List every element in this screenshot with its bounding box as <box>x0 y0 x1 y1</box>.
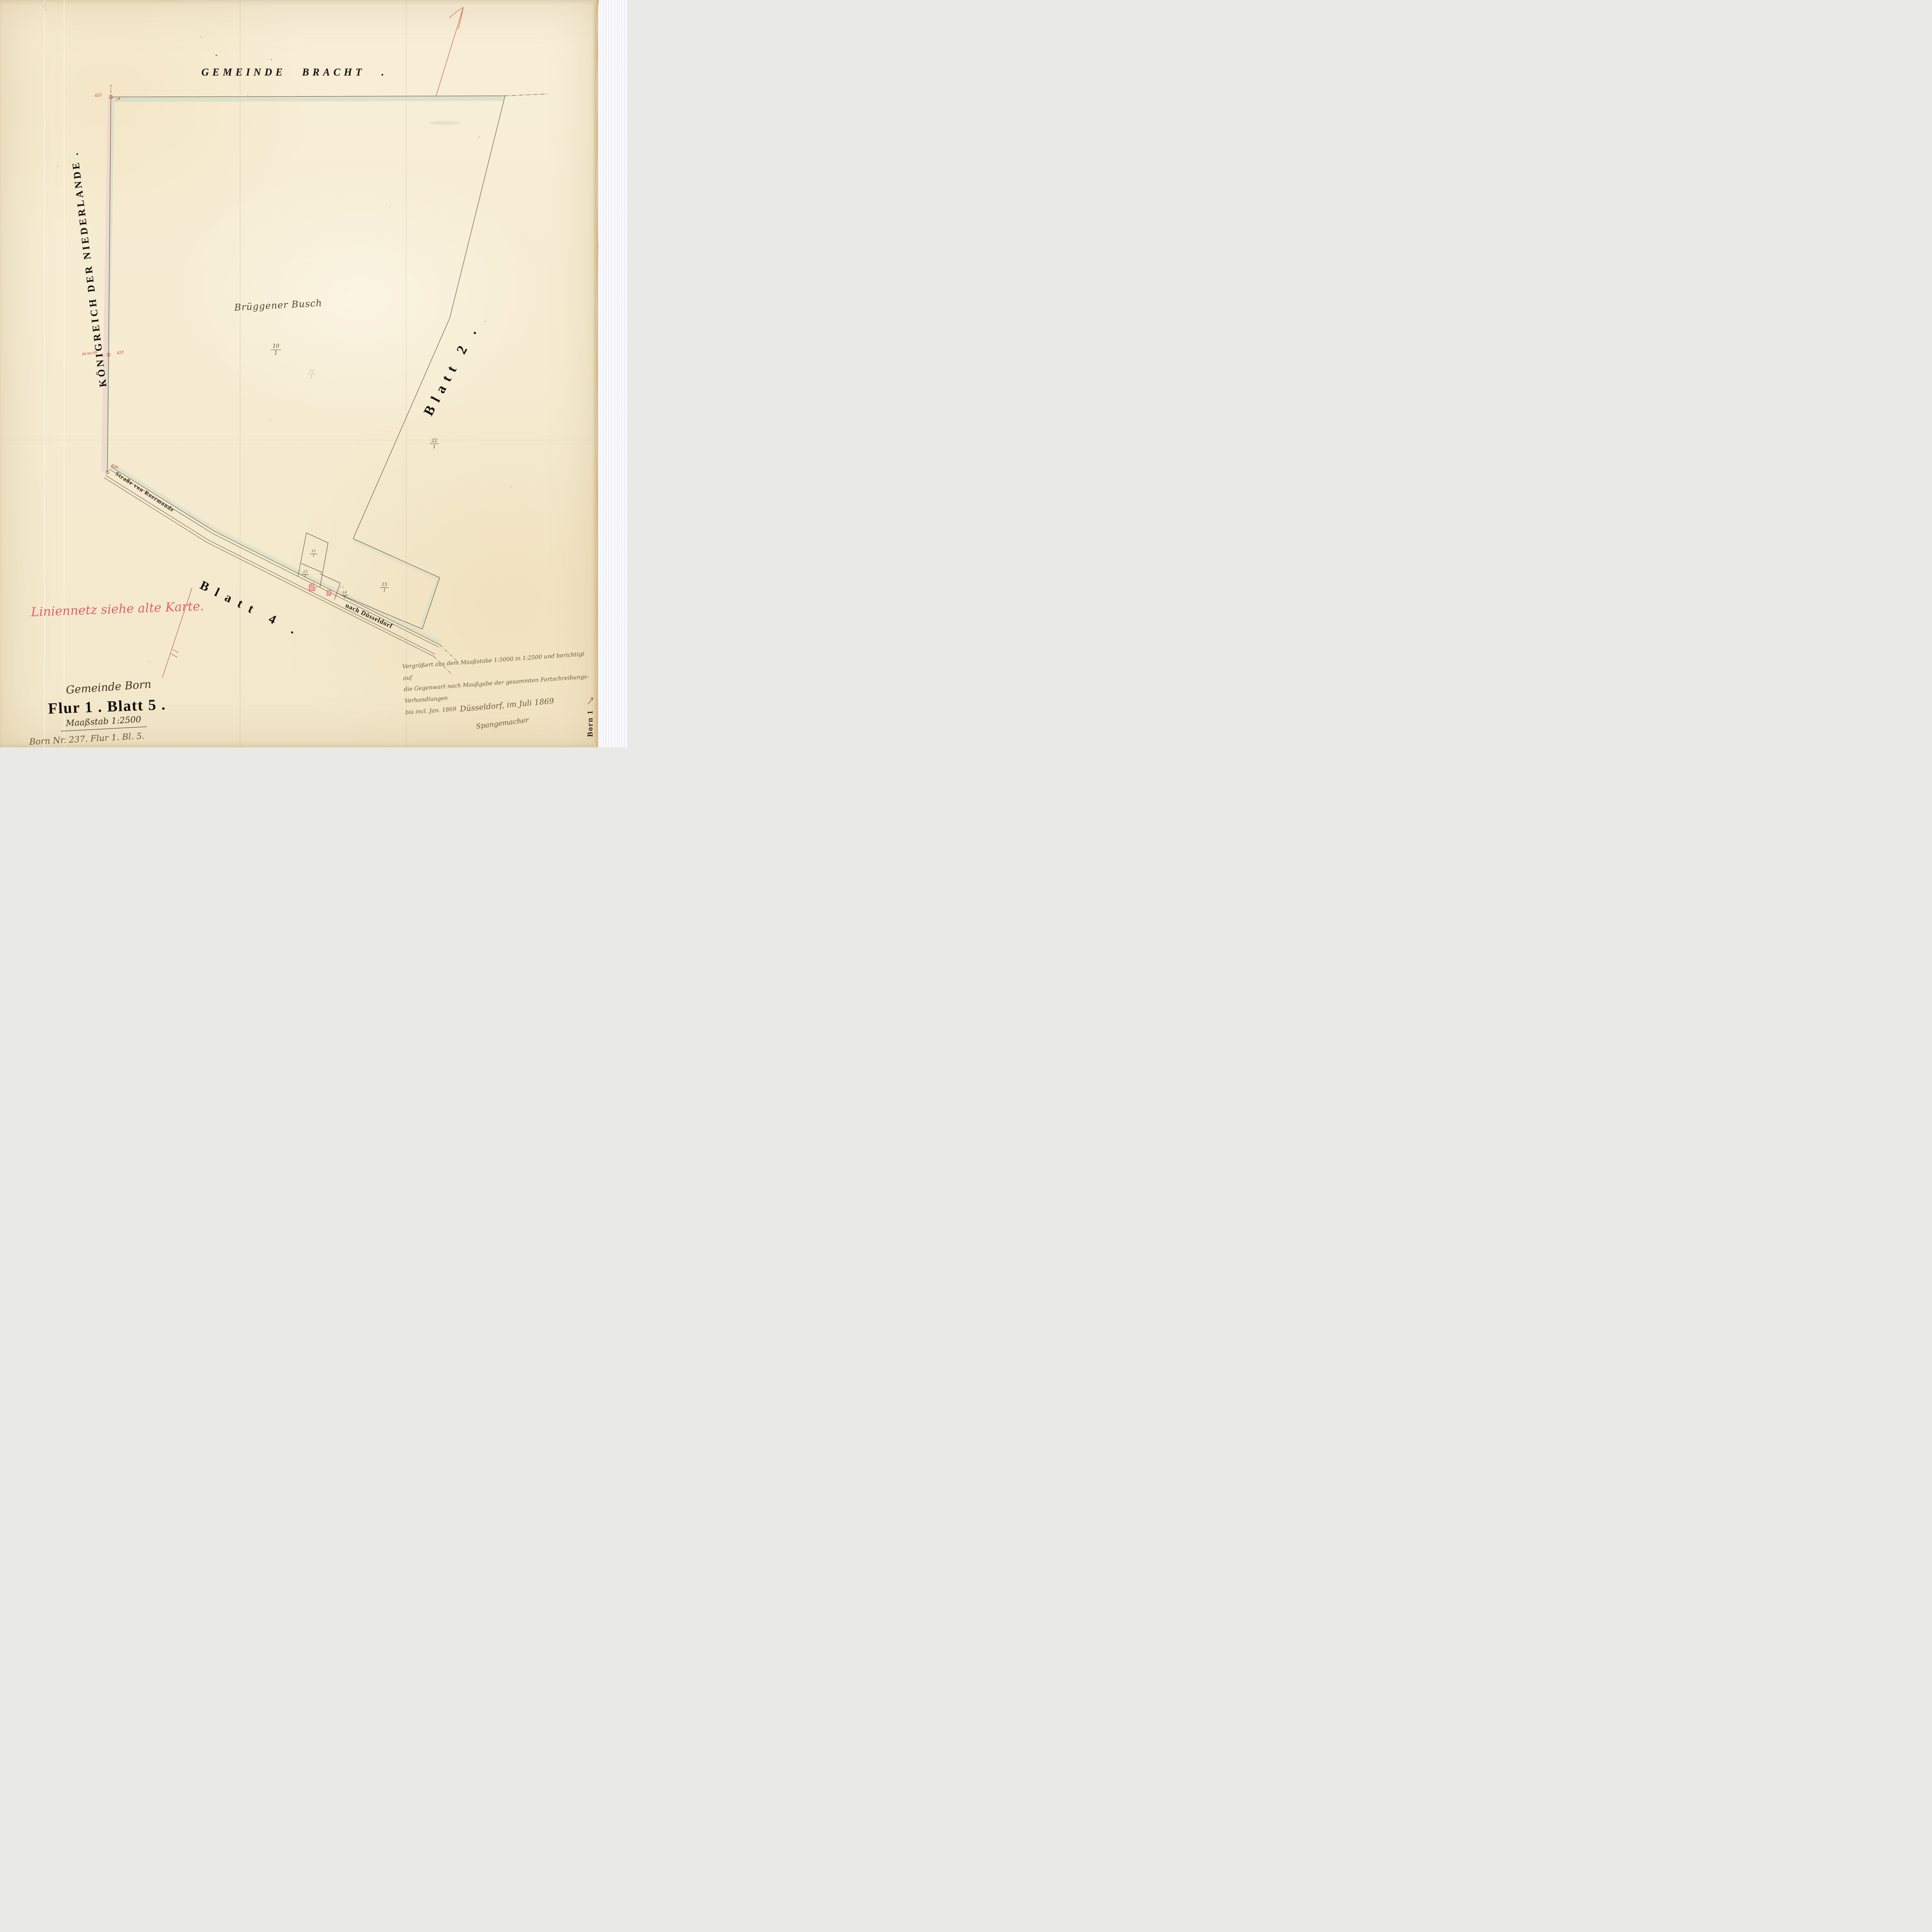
ink-fleck <box>216 54 217 56</box>
scanned-map-sheet: GEMEINDE BRACHT . KÖNIGREICH DER NIEDERL… <box>0 0 628 747</box>
building-parcel14 <box>327 590 331 595</box>
parcel-number-10-1: 10 1 <box>271 344 281 356</box>
north-arrow-barb-right <box>458 7 463 29</box>
north-arrow-barb-left <box>449 7 463 18</box>
building-parcel13 <box>309 583 315 591</box>
parcel11-top-edge <box>306 533 328 543</box>
north-boundary-dashdot <box>505 94 548 96</box>
stone-dot <box>107 472 108 473</box>
road-outer-lower <box>104 478 434 656</box>
ink-fleck <box>271 59 272 60</box>
green-wash-north-boundary <box>113 96 504 102</box>
parcel-number-15-1: 15 1 <box>380 582 389 592</box>
stone-dot <box>111 97 111 97</box>
parcel11-right-edge <box>320 543 328 587</box>
building-annex-line <box>315 587 317 588</box>
parcel14-top-edge <box>320 574 340 583</box>
parcel-number-22-1: 22 1 <box>430 438 439 449</box>
parcel-number-11-1: 11 1 <box>310 550 317 558</box>
north-arrow-shaft <box>436 7 463 97</box>
edge-label-born1: Born 1 <box>586 710 595 737</box>
stone-dot <box>108 354 109 355</box>
parcel-number-14-pencil: 14 <box>339 585 344 590</box>
title-gemeinde-bracht: GEMEINDE BRACHT . <box>201 66 388 78</box>
pencil-squiggle <box>44 3 46 11</box>
parcel-number-10-1-pencil: 10 1 <box>307 369 316 379</box>
red-scribble <box>171 649 179 657</box>
graphite-smudge <box>429 121 460 125</box>
blatt2-boundary-line <box>353 96 505 539</box>
parcel-number-13-1: 13 1 <box>301 570 309 579</box>
parcel-number-14-1: 14 1 <box>341 591 348 600</box>
